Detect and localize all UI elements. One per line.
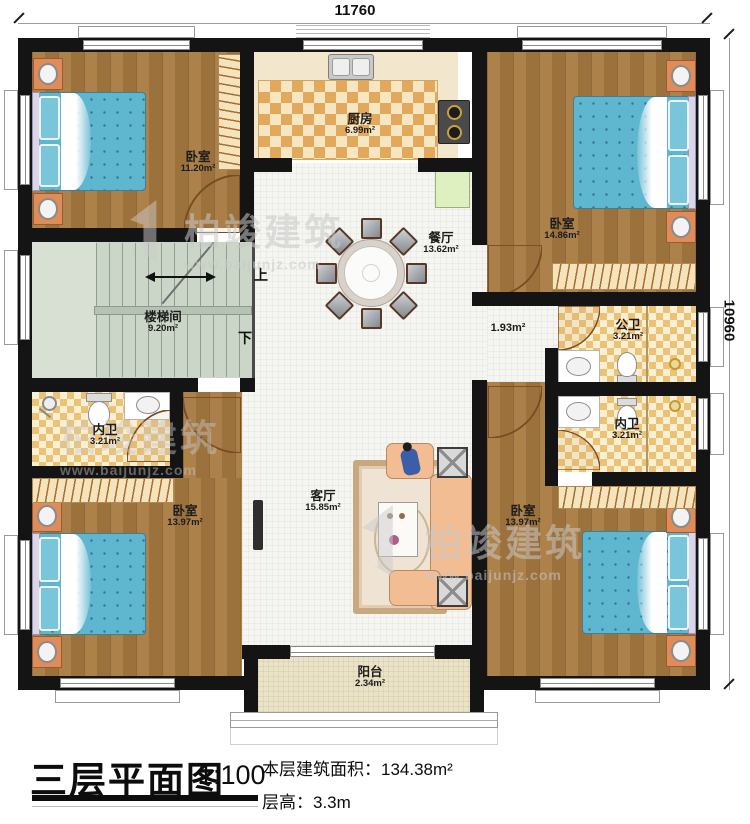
nightstand xyxy=(32,636,62,668)
room-label-bedroom-bottom-right: 卧室13.97m² xyxy=(505,504,540,529)
window-sill xyxy=(4,90,18,190)
room-label-bedroom-bottom-left: 卧室13.97m² xyxy=(167,504,202,529)
window xyxy=(20,95,30,185)
wall-interior xyxy=(242,645,290,659)
window xyxy=(698,538,708,630)
bed-sheet xyxy=(61,93,91,190)
stair-direction-arrow xyxy=(150,276,208,278)
title-underline xyxy=(32,795,258,801)
arrow-head-left-icon xyxy=(140,272,155,282)
wardrobe xyxy=(558,486,696,509)
room-label-dining: 餐厅13.62m² xyxy=(423,231,458,256)
window xyxy=(60,678,175,688)
bed-sheet xyxy=(61,534,91,634)
room-label-bath-left: 内卫3.21m² xyxy=(90,423,120,448)
window-sill xyxy=(535,690,660,703)
room-label-bath-public: 公卫3.21m² xyxy=(613,318,643,343)
room-label-bedroom-top-right: 卧室14.86m² xyxy=(544,217,579,242)
door-bedroom-bottom-left xyxy=(183,397,241,453)
window xyxy=(83,40,190,50)
wardrobe xyxy=(552,263,696,290)
wall-interior xyxy=(472,380,487,676)
side-table xyxy=(437,576,468,607)
door-bath-left xyxy=(127,410,172,462)
dim-tick xyxy=(13,12,24,23)
arrow-head-right-icon xyxy=(206,272,221,282)
nightstand xyxy=(32,500,62,532)
floor-height-label: 层高： xyxy=(262,793,313,812)
wardrobe xyxy=(32,478,174,503)
room-label-stairwell: 楼梯间9.20m² xyxy=(144,310,182,335)
door-bedroom-bottom-right xyxy=(488,386,542,438)
wall-interior xyxy=(472,292,710,306)
wall-interior xyxy=(545,472,558,486)
headboard xyxy=(688,531,696,634)
wall-interior xyxy=(418,158,472,172)
floor-height-value: 3.3m xyxy=(313,793,351,812)
wall-interior xyxy=(472,38,487,245)
room-label-bedroom-top-left: 卧室11.20m² xyxy=(181,150,216,175)
window xyxy=(303,40,423,50)
door-bath-inner-right xyxy=(556,430,600,470)
sink xyxy=(566,357,591,376)
bed xyxy=(573,96,696,209)
room-label-kitchen: 厨房6.99m² xyxy=(345,112,375,137)
dining-chair xyxy=(361,218,382,239)
tv xyxy=(253,500,263,550)
window-sill xyxy=(55,690,180,703)
wall-interior xyxy=(545,382,710,396)
pillows xyxy=(668,100,689,205)
wall-interior xyxy=(435,645,472,659)
wardrobe xyxy=(218,54,241,170)
wall-interior xyxy=(18,378,198,392)
wall-interior xyxy=(545,396,558,472)
floor-area-label: 本层建筑面积： xyxy=(262,760,381,779)
wall-interior xyxy=(18,228,197,242)
window-sill xyxy=(710,393,724,455)
window xyxy=(20,540,30,630)
towel-hook-icon xyxy=(669,358,681,370)
wall-interior xyxy=(240,378,255,392)
dining-table-center xyxy=(362,264,380,282)
window xyxy=(698,398,708,450)
floor-area-info: 本层建筑面积：134.38m² xyxy=(262,755,453,780)
window-sill xyxy=(4,250,18,345)
wall-interior xyxy=(240,228,255,242)
stair-divider xyxy=(252,242,255,378)
headboard xyxy=(688,96,696,209)
fridge-cabinet xyxy=(435,168,470,208)
shower-partition xyxy=(646,396,648,472)
wall-interior xyxy=(592,472,710,486)
window xyxy=(698,312,708,362)
kitchen-sink xyxy=(328,54,374,80)
porch-roof-lines xyxy=(296,24,430,38)
wall-interior xyxy=(240,52,254,228)
pillows xyxy=(668,535,689,630)
dining-chair xyxy=(406,263,427,284)
window xyxy=(522,40,662,50)
wall-balcony-right xyxy=(470,645,484,712)
wall-interior xyxy=(545,348,558,382)
door-bedroom-top-left xyxy=(184,175,240,233)
shower-partition xyxy=(646,306,648,382)
room-label-living: 客厅15.85m² xyxy=(305,489,340,514)
window-sill xyxy=(710,90,724,205)
floor-stair-landing xyxy=(32,242,96,378)
door-bath-public xyxy=(558,306,600,350)
nightstand xyxy=(666,635,696,667)
window-sill xyxy=(517,26,667,38)
title-underline-thin xyxy=(32,806,258,807)
burner-icon xyxy=(447,105,462,120)
stair-up-label: 上 xyxy=(254,265,268,285)
dim-top-value: 11760 xyxy=(305,2,405,19)
dim-right-value: 10960 xyxy=(721,286,738,356)
window-sill xyxy=(4,535,18,635)
towel-hook-icon xyxy=(669,400,681,412)
sofa-single xyxy=(389,570,441,606)
toilet xyxy=(617,352,637,377)
door-bedroom-top-right xyxy=(488,245,542,297)
nightstand xyxy=(666,211,696,243)
bed-sheet xyxy=(637,532,667,633)
nightstand xyxy=(33,193,63,225)
bed xyxy=(32,533,146,635)
floor-height-info: 层高：3.3m xyxy=(262,788,351,813)
shower-head-icon xyxy=(42,396,57,411)
window xyxy=(698,95,708,200)
pillows xyxy=(39,537,60,631)
dim-tick xyxy=(701,12,712,23)
dining-chair xyxy=(361,308,382,329)
window-sill xyxy=(78,26,195,38)
bed-sheet xyxy=(637,97,667,208)
room-label-bath-inner-right: 内卫3.21m² xyxy=(612,417,642,442)
sink xyxy=(566,402,591,421)
stove xyxy=(438,100,470,144)
plan-scale: 1:100 xyxy=(198,760,266,791)
nightstand xyxy=(666,60,696,92)
room-label-balcony: 阳台2.34m² xyxy=(355,665,385,690)
balcony-sliding-door xyxy=(290,646,435,657)
burner-icon xyxy=(447,125,462,140)
dim-line-right xyxy=(729,38,730,690)
balcony-railing xyxy=(230,712,498,728)
wall-interior xyxy=(18,466,183,478)
window xyxy=(540,678,655,688)
window-sill xyxy=(710,533,724,635)
floor-area-value: 134.38m² xyxy=(381,760,453,779)
wall-interior xyxy=(240,158,292,172)
pillows xyxy=(39,96,60,187)
bed xyxy=(32,92,146,191)
floor-plan-canvas: 11760 10960 上 下 xyxy=(0,0,750,824)
side-table xyxy=(437,447,468,478)
bed xyxy=(582,531,696,634)
window xyxy=(20,255,30,340)
nightstand xyxy=(33,58,63,90)
corridor-area-label: 1.93m² xyxy=(491,322,526,335)
stair-flight-upper xyxy=(96,243,252,306)
stair-down-label: 下 xyxy=(238,328,252,348)
dining-chair xyxy=(316,263,337,284)
